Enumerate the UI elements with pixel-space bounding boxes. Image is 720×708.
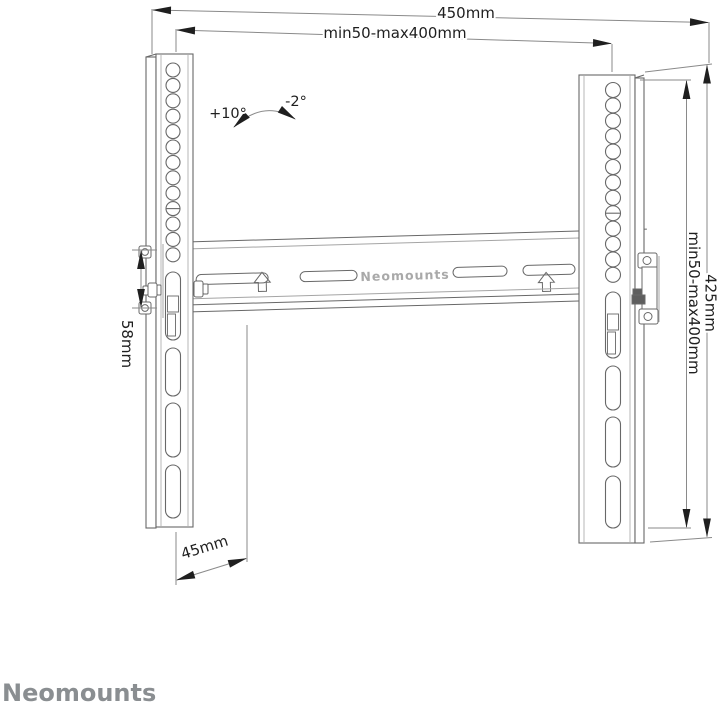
bracket-top-tab: [638, 253, 657, 268]
extension-line: [645, 64, 712, 72]
dim-depth-label: 45mm: [179, 532, 230, 563]
plate-bottom-edge: [156, 292, 647, 306]
dim-total-height-label: 425mm: [702, 274, 720, 332]
right-rail: [579, 75, 644, 543]
mount-technical-drawing: Neomounts: [0, 0, 720, 708]
dim-total-width-label: 450mm: [437, 4, 495, 22]
bracket-bottom-tab: [639, 309, 658, 324]
wall-plate: Neomounts: [154, 229, 649, 313]
plate-brand-label: Neomounts: [360, 267, 450, 284]
plate-bottom-inner-edge: [157, 286, 644, 300]
hook-bolt: [143, 286, 148, 295]
bracket-clamp: [633, 289, 642, 295]
dimension-line: [153, 10, 708, 23]
plate-lip-edge: [158, 299, 645, 313]
brand-logo: Neomounts: [2, 679, 156, 707]
tilt-down-label: -2°: [285, 94, 307, 110]
dim-bracket-height-label: 58mm: [118, 320, 136, 368]
dim-vesa-width-label: min50-max400mm: [323, 24, 466, 42]
drawing-svg: Neomounts: [0, 0, 720, 708]
plate-top-inner-edge: [155, 236, 644, 250]
extension-line: [650, 538, 712, 543]
right-rail-front-face: [579, 75, 635, 543]
plate-top-edge: [155, 229, 647, 243]
dim-vesa-height-label: min50-max400mm: [685, 231, 703, 374]
tilt-up-label: +10°: [209, 106, 247, 122]
